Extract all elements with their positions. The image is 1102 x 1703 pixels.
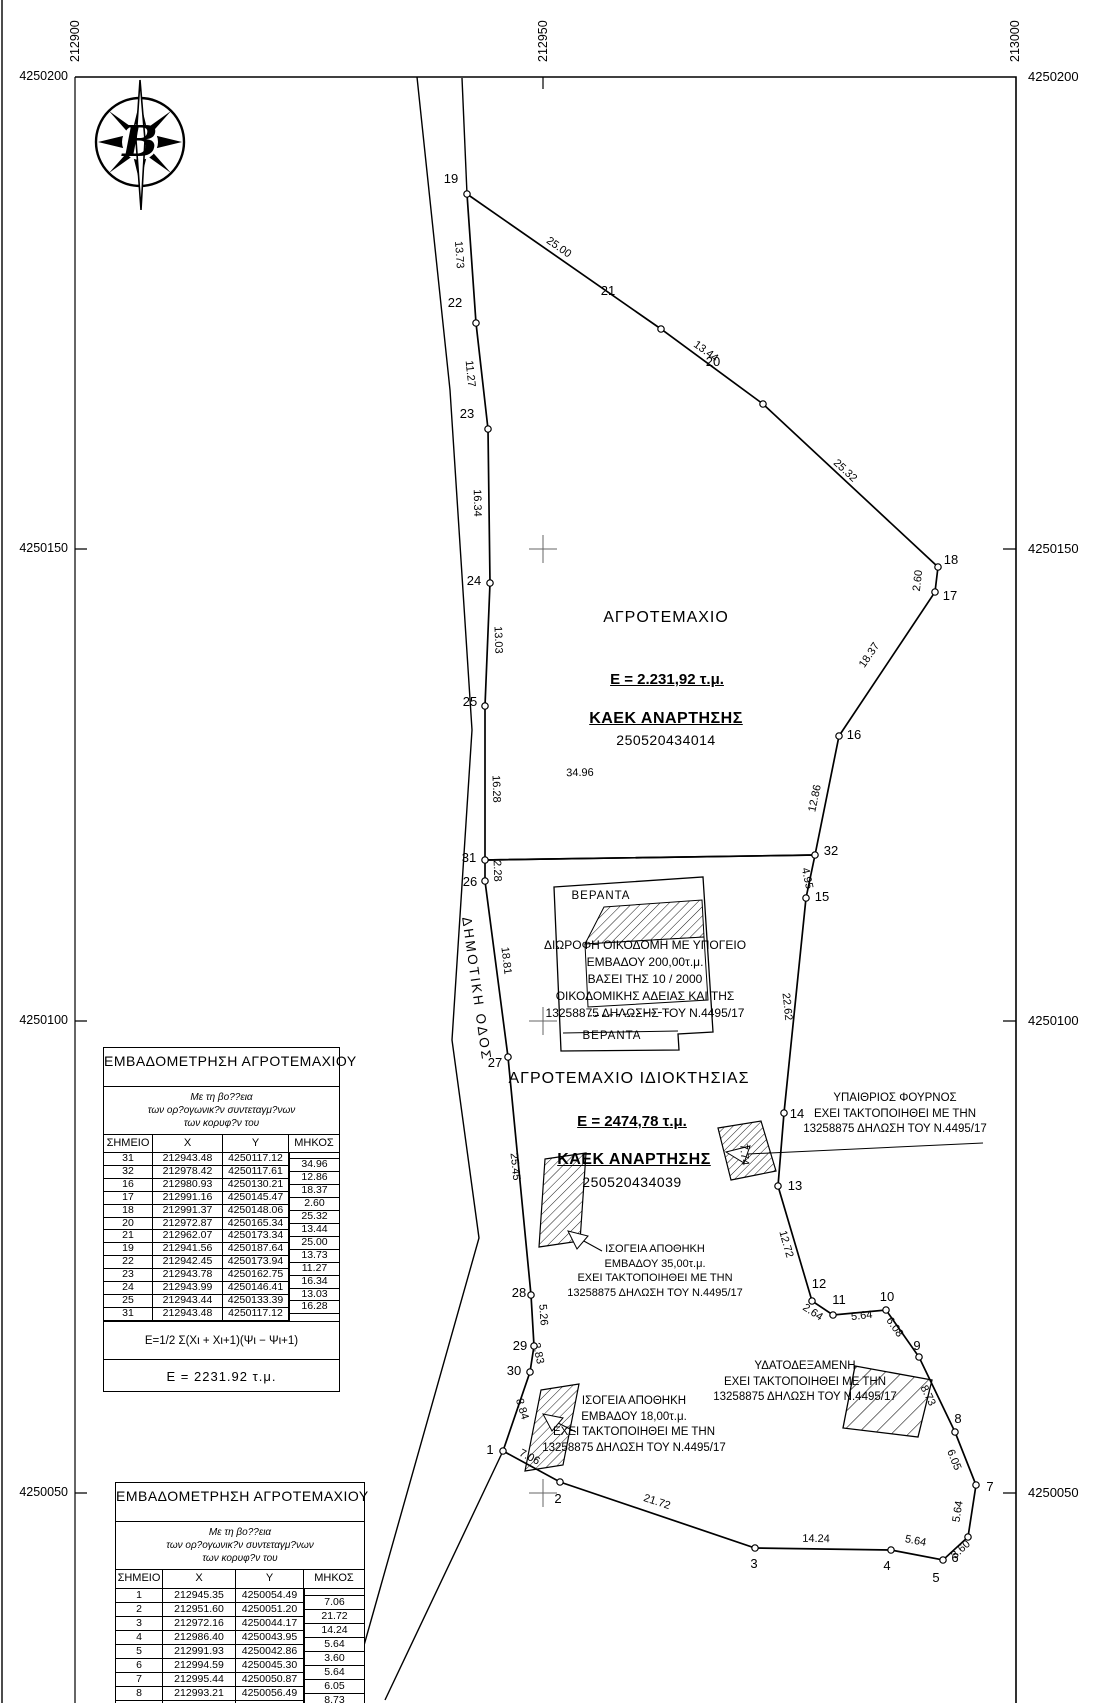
grid-label-top: 212900 [68, 20, 82, 62]
vertex-marker [658, 326, 664, 332]
table-cell: 8 [116, 1687, 163, 1701]
vertex-marker [830, 1312, 836, 1318]
house-annotation: ΔΙΩΡΟΦΗ ΟΙΚΟΔΟΜΗ ΜΕ ΥΠΟΓΕΙΟΕΜΒΑΔΟΥ 200,0… [544, 937, 746, 1022]
vertex-marker [482, 857, 488, 863]
vertex-label: 30 [507, 1363, 521, 1378]
table-body: 31212943.484250117.1232212978.424250117.… [104, 1153, 289, 1321]
segment-length-label: 34.96 [566, 767, 594, 779]
table-row: 7212995.444250050.87 [116, 1673, 304, 1687]
vertex-marker [473, 320, 479, 326]
vertex-marker [527, 1369, 533, 1375]
vertex-marker [775, 1183, 781, 1189]
table-cell: 5 [116, 1645, 163, 1659]
table-cell: 212943.48 [153, 1153, 223, 1166]
grid-label-right: 4250150 [1028, 541, 1079, 556]
table-cell: 4250050.87 [236, 1673, 304, 1687]
table-header-cell: X [153, 1135, 223, 1152]
vertex-marker [485, 426, 491, 432]
vertex-label: 23 [460, 406, 474, 421]
table-cell: 4250117.61 [223, 1166, 289, 1179]
table-cell: 16 [104, 1179, 153, 1192]
length-cell: 25.00 [290, 1237, 339, 1250]
vertex-label: 20 [706, 354, 720, 369]
table-subtitle-line: Με τη βο??εια [104, 1091, 339, 1104]
storage18-annotation-line: ΕΧΕΙ ΤΑΚΤΟΠΟΙΗΘΕΙ ΜΕ ΤΗΝ [542, 1425, 726, 1441]
table-header-cell: ΣΗΜΕΙΟ [116, 1570, 163, 1588]
vertex-marker [809, 1298, 815, 1304]
length-cell: 16.28 [290, 1301, 339, 1314]
vertex-marker [935, 564, 941, 570]
table-row: 31212943.484250117.12 [104, 1153, 289, 1166]
vertex-label: 3 [750, 1556, 757, 1571]
table-cell: 4250044.17 [236, 1617, 304, 1631]
vertex-label: 32 [824, 843, 838, 858]
table-header-cell: X [163, 1570, 236, 1588]
table-cell: 4250054.49 [236, 1589, 304, 1603]
table-row: 1212945.354250054.49 [116, 1589, 304, 1603]
grid-label-right: 4250100 [1028, 1013, 1079, 1028]
road-lines [350, 77, 503, 1700]
vertex-marker [557, 1479, 563, 1485]
table-subtitle-line: Με τη βο??εια [116, 1526, 364, 1539]
length-cell: 8.73 [305, 1694, 364, 1703]
table-cell: 4250042.86 [236, 1645, 304, 1659]
table-body: 1212945.354250054.492212951.604250051.20… [116, 1589, 304, 1703]
north-arrow: Β [96, 80, 184, 210]
segment-length-label: 7.74 [737, 1144, 751, 1166]
grid-label-left: 4250200 [4, 69, 68, 83]
table-cell: 212994.59 [163, 1659, 236, 1673]
vertex-marker [531, 1343, 537, 1349]
storage18-annotation-line: ΙΣΟΓΕΙΑ ΑΠΟΘΗΚΗ [542, 1394, 726, 1410]
segment-length-label: 25.45 [508, 1152, 523, 1181]
vertex-label: 2 [554, 1491, 561, 1506]
segment-length-label: 5.64 [950, 1500, 965, 1523]
storage35-annotation-line: 13258875 ΔΗΛΩΣΗ ΤΟΥ Ν.4495/17 [567, 1286, 743, 1301]
table-cell: 4250056.49 [236, 1687, 304, 1701]
vertex-marker [973, 1482, 979, 1488]
vertex-label: 18 [944, 552, 958, 567]
table-header-cell: ΜΗΚΟΣ [304, 1570, 364, 1588]
vertex-label: 19 [444, 171, 458, 186]
grid-label-left: 4250100 [4, 1013, 68, 1027]
table-length-column: 34.9612.8618.372.6025.3213.4425.0013.731… [289, 1153, 339, 1321]
table-row: 18212991.374250148.06 [104, 1205, 289, 1218]
segment-length-label: 12.86 [806, 784, 823, 813]
table-cell: 4250130.21 [223, 1179, 289, 1192]
grid-label-right: 4250200 [1028, 69, 1079, 84]
table-cell: 31 [104, 1153, 153, 1166]
vertex-label: 29 [513, 1338, 527, 1353]
table-cell: 18 [104, 1205, 153, 1218]
vertex-marker [528, 1292, 534, 1298]
vertex-marker [836, 733, 842, 739]
grid-label-top: 213000 [1008, 20, 1022, 62]
segment-length-label: 2.64 [800, 1302, 825, 1324]
grid-label-left: 4250050 [4, 1485, 68, 1499]
grid-label-right: 4250050 [1028, 1485, 1079, 1500]
vertex-label: 14 [790, 1106, 804, 1121]
table-cell: 212943.44 [153, 1295, 223, 1308]
area-table-north: ΕΜΒΑΔΟΜΕΤΡΗΣΗ ΑΓΡΟΤΕΜΑΧΙΟΥΜε τη βο??ειατ… [103, 1047, 340, 1392]
table-cell: 212951.60 [163, 1603, 236, 1617]
length-cell: 11.27 [290, 1263, 339, 1276]
length-cell: 13.44 [290, 1224, 339, 1237]
table-cell: 212995.44 [163, 1673, 236, 1687]
length-cell: 16.34 [290, 1276, 339, 1289]
table-row: 2212951.604250051.20 [116, 1603, 304, 1617]
tank-annotation-line: ΕΧΕΙ ΤΑΚΤΟΠΟΙΗΘΕΙ ΜΕ ΤΗΝ [655, 1375, 955, 1391]
vertex-marker [888, 1547, 894, 1553]
vertex-label: 10 [880, 1289, 894, 1304]
cadastral-survey-sheet: Β [0, 0, 1102, 1703]
segment-length-label: 5.64 [904, 1533, 927, 1549]
storage35-annotation-line: ΙΣΟΓΕΙΑ ΑΠΟΘΗΚΗ [567, 1242, 743, 1257]
storage18-annotation-line: 13258875 ΔΗΛΩΣΗ ΤΟΥ Ν.4495/17 [542, 1441, 726, 1457]
table-subtitle: Με τη βο??ειατων ορ?ογωνικ?ν συντεταγμ?ν… [104, 1086, 339, 1139]
parcel-north-kaek-label: ΚΑΕΚ ΑΝΑΡΤΗΣΗΣ [589, 710, 743, 728]
table-cell: 4 [116, 1631, 163, 1645]
table-header-cell: Y [236, 1570, 304, 1588]
tank-annotation-line: ΥΔΑΤΟΔΕΞΑΜΕΝΗ [655, 1359, 955, 1375]
table-cell: 2 [116, 1603, 163, 1617]
vertex-label: 15 [815, 889, 829, 904]
table-cell: 212945.35 [163, 1589, 236, 1603]
vertex-marker [812, 852, 818, 858]
vertex-label: 9 [913, 1338, 920, 1353]
segment-length-label: 11.27 [463, 360, 478, 388]
oven-annotation-line: 13258875 ΔΗΛΩΣΗ ΤΟΥ Ν.4495/17 [803, 1122, 987, 1138]
table-cell: 212991.93 [163, 1645, 236, 1659]
vertex-marker [482, 703, 488, 709]
table-header-row: ΣΗΜΕΙΟXYΜΗΚΟΣ [116, 1569, 364, 1589]
house-annotation-line: ΒΑΣΕΙ ΤΗΣ 10 / 2000 [544, 971, 746, 988]
north-letter: Β [121, 117, 158, 166]
table-result: Ε = 2231.92 τ.μ. [104, 1359, 339, 1393]
vertex-marker [932, 589, 938, 595]
vertex-label: 31 [462, 850, 476, 865]
vertex-marker [781, 1110, 787, 1116]
vertex-marker [487, 580, 493, 586]
segment-length-label: 25.00 [544, 235, 573, 261]
parcel-south-title: ΑΓΡΟΤΕΜΑΧΙΟ ΙΔΙΟΚΤΗΣΙΑΣ [509, 1070, 750, 1088]
vertex-marker [482, 878, 488, 884]
table-cell: 4250043.95 [236, 1631, 304, 1645]
parcel-north-area: Ε = 2.231,92 τ.μ. [610, 671, 724, 688]
table-title: ΕΜΒΑΔΟΜΕΤΡΗΣΗ ΑΓΡΟΤΕΜΑΧΙΟΥ [116, 1483, 364, 1526]
table-cell: 212993.21 [163, 1687, 236, 1701]
vertex-marker [500, 1448, 506, 1454]
table-row: 25212943.444250133.39 [104, 1295, 289, 1308]
veranda-top-label: ΒΕΡΑΝΤΑ [572, 890, 631, 902]
vertex-label: 21 [601, 283, 615, 298]
table-subtitle-line: των κορυφ?ν του [116, 1552, 364, 1565]
length-cell: 5.64 [305, 1638, 364, 1652]
table-cell: 7 [116, 1673, 163, 1687]
vertex-label: 5 [932, 1570, 939, 1585]
table-cell: 4250145.47 [223, 1192, 289, 1205]
parcel-north-boundary [467, 194, 938, 860]
table-cell: 212980.93 [153, 1179, 223, 1192]
vertex-marker [965, 1534, 971, 1540]
storage18-annotation: ΙΣΟΓΕΙΑ ΑΠΟΘΗΚΗΕΜΒΑΔΟΥ 18,00τ.μ.ΕΧΕΙ ΤΑΚ… [542, 1394, 726, 1456]
vertex-label: 13 [788, 1178, 802, 1193]
table-row: 3212972.164250044.17 [116, 1617, 304, 1631]
segment-length-label: 13.03 [492, 626, 505, 654]
parcel-south-kaek-label: ΚΑΕΚ ΑΝΑΡΤΗΣΗΣ [557, 1151, 711, 1169]
parcel-north-kaek-number: 250520434014 [616, 732, 715, 748]
storage35-annotation-line: ΕΜΒΑΔΟΥ 35,00τ.μ. [567, 1257, 743, 1272]
table-formula: Ε=1/2 Σ(Χι + Χι+1)(Ψι − Ψι+1) [104, 1321, 339, 1360]
length-cell: 6.05 [305, 1680, 364, 1694]
grid-label-top: 212950 [536, 20, 550, 62]
segment-length-label: 18.37 [857, 641, 882, 671]
length-cell: 3.60 [305, 1652, 364, 1666]
oven-annotation: ΥΠΑΙΘΡΙΟΣ ΦΟΥΡΝΟΣΕΧΕΙ ΤΑΚΤΟΠΟΙΗΘΕΙ ΜΕ ΤΗ… [803, 1091, 987, 1138]
vertex-label: 11 [832, 1292, 846, 1307]
table-subtitle-line: των ορ?ογωνικ?ν συντεταγμ?νων [104, 1104, 339, 1117]
vertex-label: 1 [486, 1442, 493, 1457]
veranda-bottom-label: ΒΕΡΑΝΤΑ [583, 1030, 642, 1042]
vertex-marker [883, 1307, 889, 1313]
segment-length-label: 21.72 [642, 1492, 672, 1512]
vertex-marker [952, 1429, 958, 1435]
table-cell: 212943.48 [153, 1308, 223, 1321]
table-length-column: 7.0621.7214.245.643.605.646.058.73 [304, 1589, 364, 1703]
table-cell: 212978.42 [153, 1166, 223, 1179]
segment-length-label: 2.28 [491, 860, 504, 882]
segment-length-label: 14.24 [802, 1533, 830, 1545]
segment-length-label: 22.62 [780, 992, 795, 1021]
table-row: 16212980.934250130.21 [104, 1179, 289, 1192]
vertex-marker [464, 191, 470, 197]
length-cell: 13.73 [290, 1250, 339, 1263]
table-cell: 4250051.20 [236, 1603, 304, 1617]
storage18-annotation-line: ΕΜΒΑΔΟΥ 18,00τ.μ. [542, 1410, 726, 1426]
oven-annotation-line: ΕΧΕΙ ΤΑΚΤΟΠΟΙΗΘΕΙ ΜΕ ΤΗΝ [803, 1107, 987, 1123]
house-annotation-line: ΕΜΒΑΔΟΥ 200,00τ.μ. [544, 954, 746, 971]
table-subtitle-line: των κορυφ?ν του [104, 1117, 339, 1130]
vertex-marker [760, 401, 766, 407]
table-row: 4212986.404250043.95 [116, 1631, 304, 1645]
table-subtitle-line: των ορ?ογωνικ?ν συντεταγμ?νων [116, 1539, 364, 1552]
length-spacer [305, 1589, 364, 1596]
table-cell: 212991.37 [153, 1205, 223, 1218]
table-cell: 25 [104, 1295, 153, 1308]
segment-length-label: 13.73 [452, 241, 466, 269]
house-annotation-line: ΔΙΩΡΟΦΗ ΟΙΚΟΔΟΜΗ ΜΕ ΥΠΟΓΕΙΟ [544, 937, 746, 954]
vertex-label: 4 [883, 1558, 890, 1573]
vertex-label: 28 [512, 1285, 526, 1300]
table-cell: 212972.16 [163, 1617, 236, 1631]
length-cell: 21.72 [305, 1610, 364, 1624]
house-annotation-line: ΟΙΚΟΔΟΜΙΚΗΣ ΑΔΕΙΑΣ ΚΑΙ ΤΗΣ [544, 988, 746, 1005]
vertex-label: 12 [812, 1276, 826, 1291]
length-cell: 7.06 [305, 1596, 364, 1610]
table-header-row: ΣΗΜΕΙΟXYΜΗΚΟΣ [104, 1134, 339, 1153]
vertex-label: 8 [954, 1411, 961, 1426]
table-cell: 4250148.06 [223, 1205, 289, 1218]
table-subtitle: Με τη βο??ειατων ορ?ογωνικ?ν συντεταγμ?ν… [116, 1521, 364, 1574]
table-row: 5212991.934250042.86 [116, 1645, 304, 1659]
parcel-south-area: Ε = 2474,78 τ.μ. [577, 1113, 687, 1130]
storage35-annotation-line: ΕΧΕΙ ΤΑΚΤΟΠΟΙΗΘΕΙ ΜΕ ΤΗΝ [567, 1271, 743, 1286]
table-cell: 212986.40 [163, 1631, 236, 1645]
table-cell: 4250045.30 [236, 1659, 304, 1673]
house-annotation-line: 13258875 ΔΗΛΩΣΗΣ ΤΟΥ Ν.4495/17 [544, 1005, 746, 1022]
table-header-cell: ΜΗΚΟΣ [289, 1135, 339, 1152]
table-cell: 4250133.39 [223, 1295, 289, 1308]
oven-annotation-line: ΥΠΑΙΘΡΙΟΣ ΦΟΥΡΝΟΣ [803, 1091, 987, 1107]
segment-length-label: 8.84 [513, 1397, 531, 1421]
segment-length-label: 6.08 [883, 1315, 905, 1339]
table-cell: 3 [116, 1617, 163, 1631]
vertex-label: 7 [986, 1479, 993, 1494]
parcel-north-title: ΑΓΡΟΤΕΜΑΧΙΟ [603, 609, 729, 627]
vertex-label: 22 [448, 295, 462, 310]
segment-length-label: 2.60 [911, 569, 926, 592]
table-cell: 32 [104, 1166, 153, 1179]
parcel-south-kaek-number: 250520434039 [582, 1174, 681, 1190]
table-cell: 6 [116, 1659, 163, 1673]
segment-length-label: 16.28 [490, 775, 503, 803]
grid-label-left: 4250150 [4, 541, 68, 555]
table-title: ΕΜΒΑΔΟΜΕΤΡΗΣΗ ΑΓΡΟΤΕΜΑΧΙΟΥ [104, 1048, 339, 1091]
segment-length-label: 18.81 [498, 946, 513, 975]
table-row: 31212943.484250117.12 [104, 1308, 289, 1321]
table-header-cell: Y [223, 1135, 289, 1152]
table-cell: 17 [104, 1192, 153, 1205]
segment-length-label: 6.05 [944, 1448, 963, 1472]
table-header-cell: ΣΗΜΕΙΟ [104, 1135, 153, 1152]
table-row: 6212994.594250045.30 [116, 1659, 304, 1673]
vertex-label: 6 [951, 1550, 958, 1565]
length-cell: 5.64 [305, 1666, 364, 1680]
table-row: 8212993.214250056.49 [116, 1687, 304, 1701]
table-cell: 31 [104, 1308, 153, 1321]
table-cell: 4250117.12 [223, 1308, 289, 1321]
segment-length-label: 5.26 [536, 1304, 549, 1326]
vertex-label: 24 [467, 573, 481, 588]
vertex-label: 16 [847, 727, 861, 742]
table-cell: 212991.16 [153, 1192, 223, 1205]
area-table-south: ΕΜΒΑΔΟΜΕΤΡΗΣΗ ΑΓΡΟΤΕΜΑΧΙΟΥΜε τη βο??ειατ… [115, 1482, 365, 1703]
length-cell: 14.24 [305, 1624, 364, 1638]
vertex-label: 26 [463, 874, 477, 889]
storage35-annotation: ΙΣΟΓΕΙΑ ΑΠΟΘΗΚΗΕΜΒΑΔΟΥ 35,00τ.μ.ΕΧΕΙ ΤΑΚ… [567, 1242, 743, 1300]
segment-length-label: 16.34 [471, 489, 483, 517]
vertex-label: 17 [943, 588, 957, 603]
vertex-marker [752, 1545, 758, 1551]
vertex-marker [940, 1557, 946, 1563]
table-cell: 4250117.12 [223, 1153, 289, 1166]
vertex-marker [803, 895, 809, 901]
segment-length-label: 5.64 [850, 1309, 873, 1323]
table-cell: 1 [116, 1589, 163, 1603]
vertex-label: 25 [463, 694, 477, 709]
table-row: 32212978.424250117.61 [104, 1166, 289, 1179]
table-row: 17212991.164250145.47 [104, 1192, 289, 1205]
vertex-marker [505, 1054, 511, 1060]
